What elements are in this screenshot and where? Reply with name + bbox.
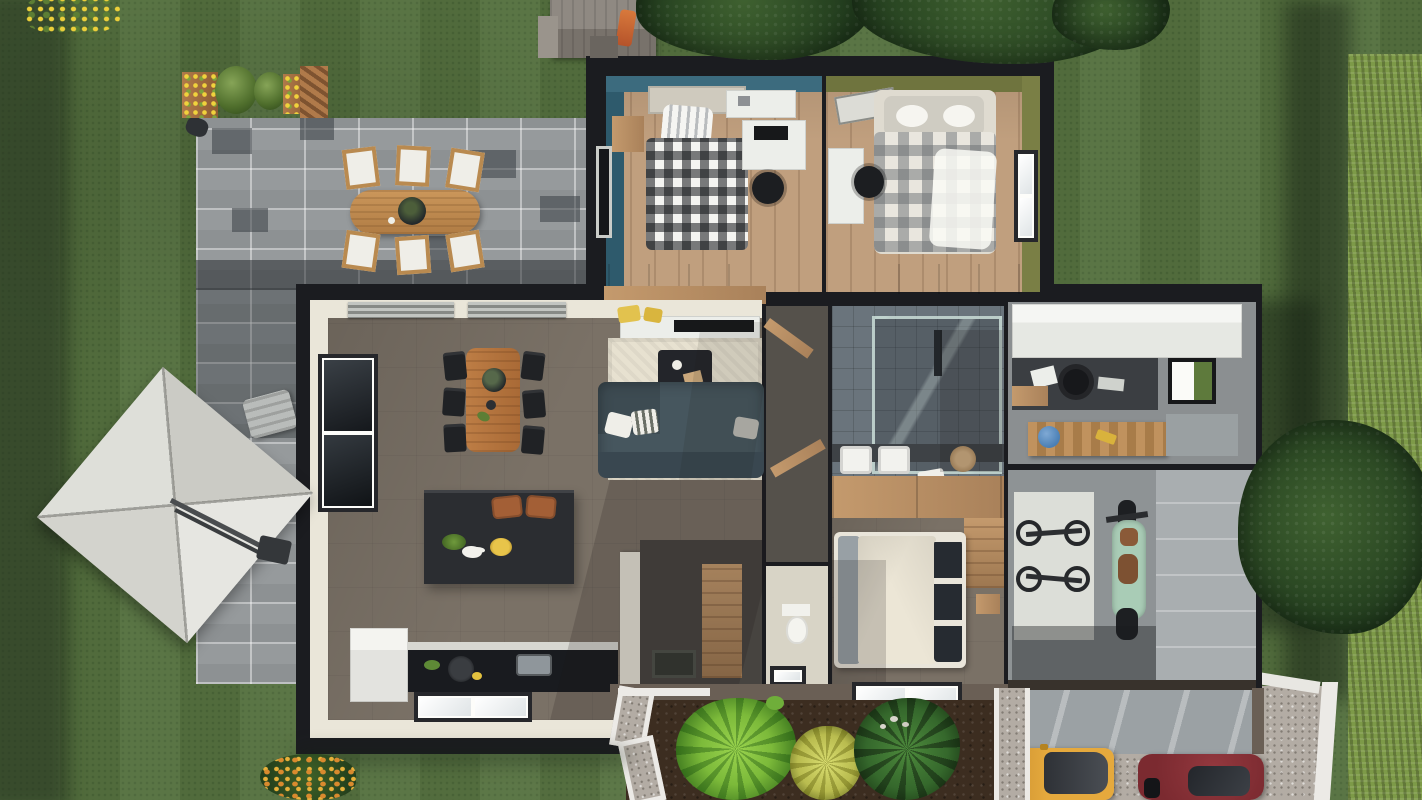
sprout xyxy=(766,696,784,710)
white-pebble xyxy=(880,724,886,729)
outdoor-chair xyxy=(395,145,431,187)
motorcycle xyxy=(1102,500,1158,640)
table-decor xyxy=(486,400,496,410)
dining-chair xyxy=(521,425,545,455)
bedroom-olive-window xyxy=(1014,150,1038,242)
white-pebble xyxy=(890,716,898,722)
office-chair xyxy=(752,172,784,204)
tree-canopy-bottom-right xyxy=(1238,420,1422,634)
coffee-table-tray xyxy=(672,360,682,370)
sofa-cushion-striped xyxy=(630,408,659,435)
fridge-cabinet xyxy=(350,628,408,702)
window-pane xyxy=(324,360,372,431)
window-pane xyxy=(776,672,800,680)
white-pebble xyxy=(902,722,909,727)
fruit-bowl xyxy=(490,538,512,556)
patio-dark-tile xyxy=(540,196,580,222)
window-blinds xyxy=(468,302,566,318)
grey-cabinets xyxy=(1166,414,1238,456)
outdoor-chair xyxy=(342,146,381,190)
car-mirror xyxy=(1040,744,1048,750)
olive-sideboard xyxy=(898,264,1040,294)
bed-pillows-white xyxy=(884,96,984,136)
window-pane xyxy=(420,698,471,716)
master-shadow xyxy=(832,560,886,686)
window-pane xyxy=(1020,156,1032,194)
front-path-right xyxy=(994,688,1030,800)
desk-monitor xyxy=(754,126,788,140)
bathroom-shadow xyxy=(940,330,1002,472)
tree-shadow-left xyxy=(0,0,68,800)
living-left-window xyxy=(318,354,378,512)
garage-floor-shadow xyxy=(1012,626,1156,684)
moto-seat xyxy=(1118,554,1138,584)
bicycle xyxy=(1012,512,1100,554)
floor-plan-scene xyxy=(0,0,1422,800)
toilet-bowl xyxy=(786,616,808,644)
patio-dark-tile xyxy=(300,118,334,140)
outdoor-chair xyxy=(445,230,485,273)
orange-flower-bush xyxy=(260,754,356,800)
window-blinds xyxy=(348,302,454,318)
bicycle xyxy=(1012,556,1100,600)
bedside-table xyxy=(976,594,1000,614)
outdoor-chair xyxy=(395,235,432,275)
wall-shelf xyxy=(726,90,796,118)
white-cat xyxy=(462,546,482,558)
house-drop-shadow xyxy=(298,750,628,762)
car-yellow-windshield xyxy=(1044,752,1108,794)
patio-dark-tile xyxy=(212,128,252,154)
outdoor-chair xyxy=(342,230,381,272)
window-pane xyxy=(1020,198,1032,236)
patio-dark-tile xyxy=(232,208,268,232)
window-pane xyxy=(475,698,526,716)
papers xyxy=(1097,377,1124,392)
corner-flower-patch xyxy=(24,0,120,34)
window-pane xyxy=(324,435,372,506)
master-wardrobe xyxy=(964,518,1004,588)
vanity-drawers xyxy=(832,476,1004,518)
cooking-pan xyxy=(448,656,474,682)
nightstand xyxy=(612,116,644,152)
dining-chair xyxy=(442,387,466,416)
wc-window xyxy=(770,666,806,686)
wall-frame-moss-panel xyxy=(1168,358,1216,404)
topiary-ball-small xyxy=(254,72,286,110)
shelf-gadget xyxy=(738,96,750,106)
wood-shelf xyxy=(1012,386,1048,406)
outdoor-chair xyxy=(445,148,485,193)
duvet-white-fold xyxy=(929,148,998,250)
vanity-basin xyxy=(840,446,872,474)
vanity-basin xyxy=(878,446,910,474)
lemon xyxy=(472,672,482,680)
bedroom-teal-window xyxy=(596,146,612,238)
bar-stool xyxy=(525,495,557,520)
vegetables xyxy=(424,660,440,670)
yellow-pouf xyxy=(617,305,641,324)
moto-tank xyxy=(1120,528,1138,546)
path-edge xyxy=(618,688,710,696)
car-red-window xyxy=(1188,766,1250,796)
planter-wood-slats xyxy=(300,66,328,118)
garage-threshold xyxy=(1008,680,1256,690)
dining-chair xyxy=(520,351,545,381)
kitchen-sink xyxy=(516,654,552,676)
white-cabinet-row xyxy=(1012,304,1242,358)
toilet-tank xyxy=(782,604,810,616)
bar-stool xyxy=(491,494,523,519)
car-red-wheel xyxy=(1144,778,1160,798)
yellow-pouf xyxy=(643,307,663,324)
blue-helmet xyxy=(1038,426,1060,448)
apron-side-wall xyxy=(1252,688,1264,754)
planter-box xyxy=(182,72,218,118)
table-bowl xyxy=(482,368,506,392)
dark-pillows xyxy=(934,540,962,662)
bed-checked-duvet xyxy=(646,138,748,250)
topiary-ball-large xyxy=(215,66,257,114)
chimney xyxy=(590,36,618,58)
dining-chair xyxy=(443,423,466,452)
office-chair xyxy=(854,166,884,198)
office-swivel-chair xyxy=(1058,364,1094,400)
kitchen-window xyxy=(414,692,532,722)
serving-bowl xyxy=(398,197,426,225)
dining-chair xyxy=(443,351,468,381)
table-decor xyxy=(388,217,395,224)
dining-chair xyxy=(522,389,546,419)
shed-annex xyxy=(538,16,558,58)
